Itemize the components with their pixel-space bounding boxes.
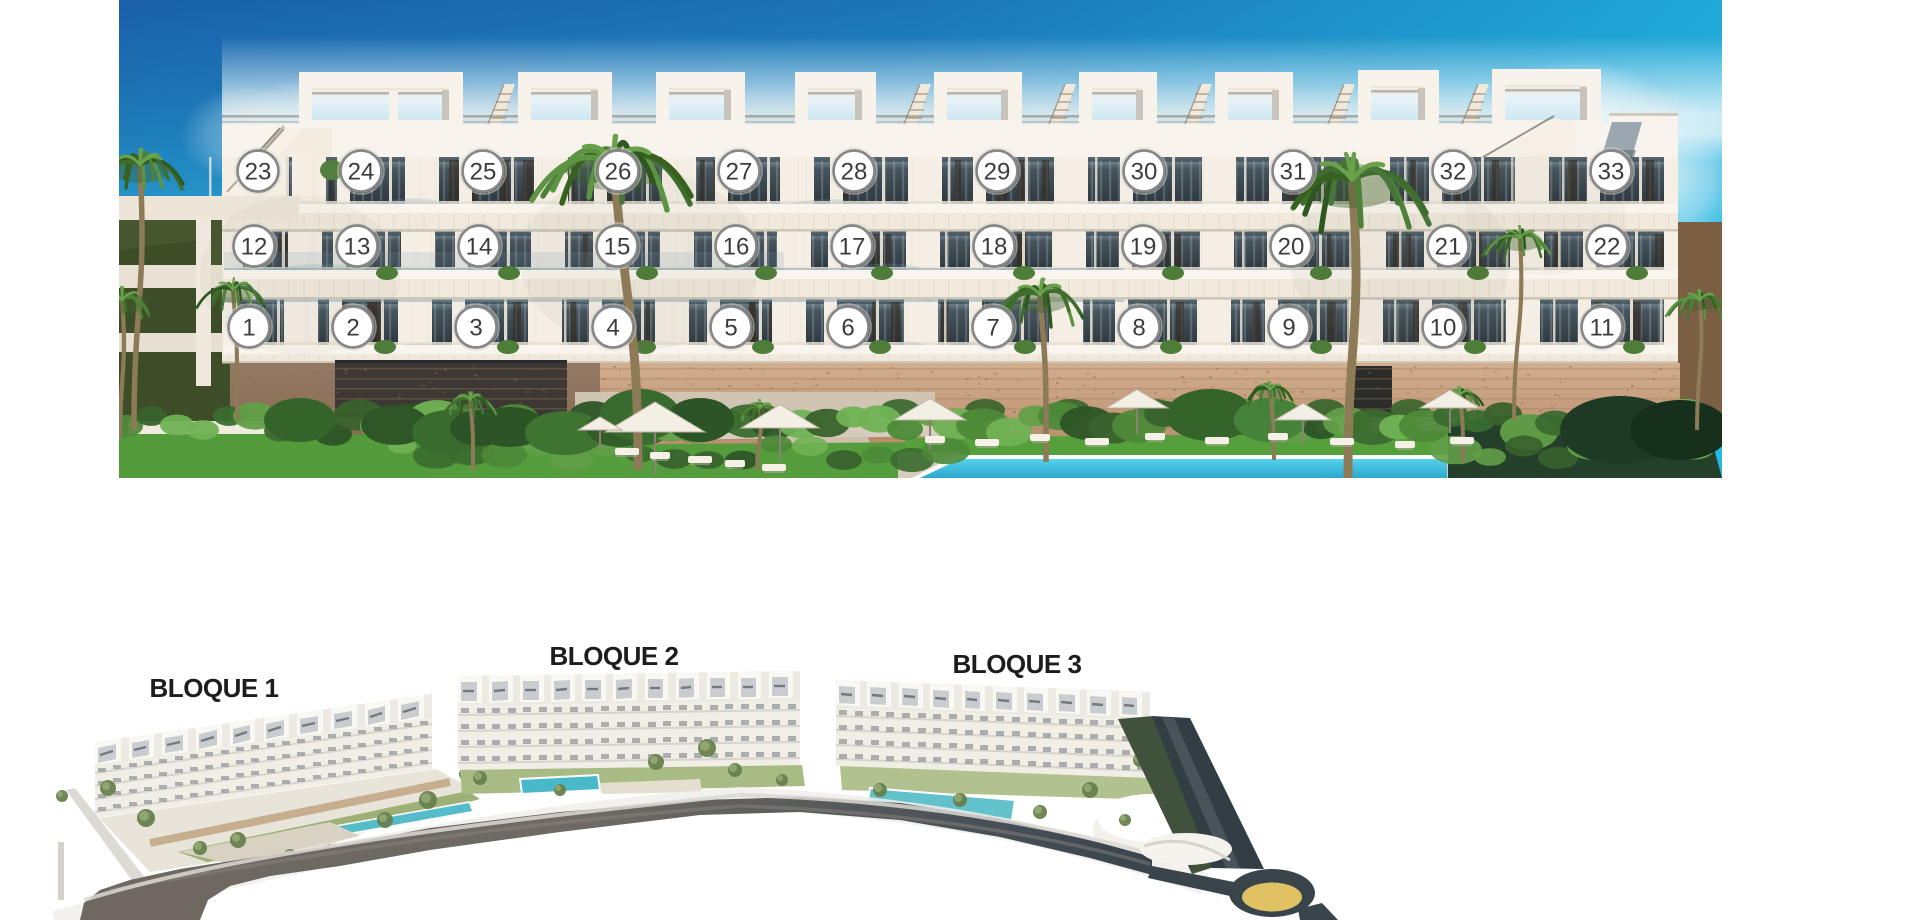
svg-text:33: 33 [1598, 159, 1625, 186]
svg-text:8: 8 [1132, 315, 1145, 342]
svg-text:18: 18 [981, 234, 1008, 261]
svg-text:23: 23 [245, 159, 272, 186]
svg-text:11: 11 [1590, 315, 1615, 342]
svg-text:4: 4 [606, 315, 619, 342]
svg-text:16: 16 [723, 234, 750, 261]
svg-text:25: 25 [470, 159, 497, 186]
svg-text:31: 31 [1280, 159, 1307, 186]
svg-text:9: 9 [1282, 315, 1295, 342]
svg-text:29: 29 [984, 159, 1011, 186]
svg-text:2: 2 [346, 315, 359, 342]
svg-text:17: 17 [839, 234, 866, 261]
svg-text:28: 28 [841, 159, 868, 186]
svg-text:15: 15 [604, 234, 631, 261]
svg-text:10: 10 [1430, 315, 1457, 342]
svg-text:19: 19 [1130, 234, 1157, 261]
svg-text:21: 21 [1435, 234, 1462, 261]
svg-text:13: 13 [344, 234, 371, 261]
svg-text:BLOQUE 2: BLOQUE 2 [550, 641, 679, 671]
svg-text:1: 1 [242, 315, 255, 342]
svg-text:BLOQUE 3: BLOQUE 3 [953, 649, 1082, 679]
svg-text:12: 12 [241, 234, 268, 261]
svg-text:24: 24 [348, 159, 375, 186]
svg-text:3: 3 [469, 315, 482, 342]
svg-text:14: 14 [466, 234, 493, 261]
svg-text:32: 32 [1440, 159, 1467, 186]
svg-text:7: 7 [986, 315, 999, 342]
svg-text:30: 30 [1131, 159, 1158, 186]
svg-text:20: 20 [1278, 234, 1305, 261]
svg-text:6: 6 [841, 315, 854, 342]
svg-text:BLOQUE 1: BLOQUE 1 [150, 673, 279, 703]
svg-text:27: 27 [726, 159, 753, 186]
svg-text:22: 22 [1594, 234, 1621, 261]
svg-text:26: 26 [605, 159, 632, 186]
svg-text:5: 5 [724, 315, 737, 342]
